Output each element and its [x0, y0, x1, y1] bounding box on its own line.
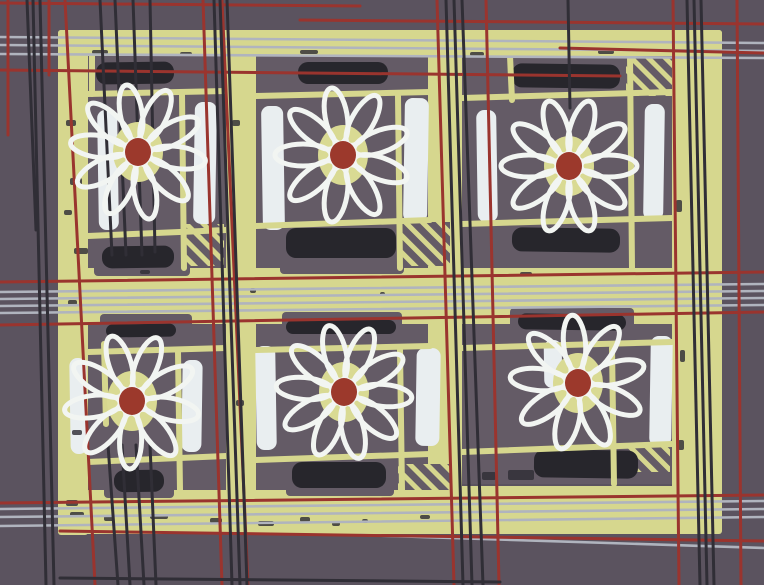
speckle	[680, 350, 685, 362]
daisy-quilt-pattern-illustration	[0, 0, 764, 585]
speckle	[72, 430, 82, 435]
green-sash-line	[612, 348, 614, 484]
speckle	[508, 470, 534, 480]
daisy-center	[556, 152, 582, 180]
green-sash-line	[88, 348, 226, 352]
daisy-center	[125, 138, 151, 166]
speckle	[676, 200, 682, 212]
white-bar	[255, 346, 277, 450]
dark-bar	[512, 227, 620, 253]
speckle	[420, 515, 430, 519]
speckle	[140, 270, 150, 274]
dark-bar	[286, 228, 396, 258]
white-bar	[415, 348, 441, 446]
dark-plaid-line-vertical	[568, 0, 570, 108]
dark-bar	[292, 462, 386, 488]
white-bar	[261, 106, 285, 230]
hatch-square	[398, 464, 450, 490]
daisy-center	[119, 387, 145, 415]
green-sash-line	[510, 56, 512, 100]
speckle	[300, 50, 318, 54]
white-bar	[476, 110, 498, 222]
green-sash-line	[400, 350, 402, 490]
white-bar	[643, 104, 665, 220]
artwork-canvas	[0, 0, 764, 585]
daisy-center	[331, 378, 357, 406]
daisy-center	[565, 369, 591, 397]
speckle	[482, 472, 496, 480]
speckle	[232, 120, 240, 126]
daisy-center	[330, 141, 356, 169]
speckle	[64, 210, 72, 215]
speckle	[74, 248, 88, 254]
white-bar	[403, 98, 429, 222]
dark-bar	[534, 449, 638, 478]
white-bar	[649, 336, 673, 446]
